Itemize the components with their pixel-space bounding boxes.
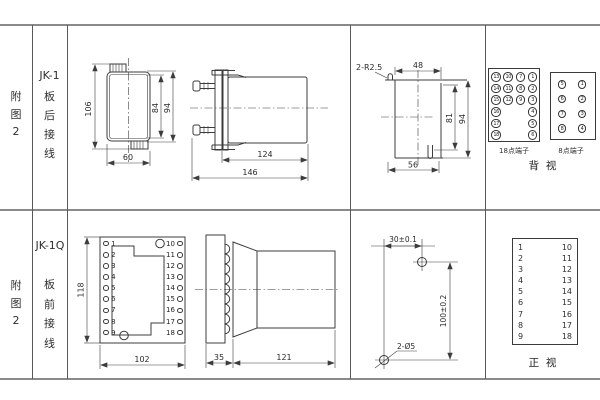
pin-number: 4 [103,271,116,282]
socket-left-pins: 123456789 [103,238,116,338]
figure-label-row1: 附 图 2 [0,88,32,141]
terminal-cell: 4 [527,106,539,118]
terminal-row: 51 [552,77,595,92]
wiring-label-row2: 板 前 接 线 [32,275,67,353]
jk1q-side-view-drawing: 35 121 [195,222,340,374]
wiring-label-row1: 板 后 接 线 [32,87,67,163]
pin-number: 14 [562,286,572,297]
terminal-block-8: 51627384 [550,72,596,140]
terminal-point: 4 [528,107,538,117]
terminal-point: 6 [528,130,538,140]
pin-number: 13 [159,271,183,282]
terminal-point: 5 [528,119,538,129]
terminal-point: 18 [491,130,501,140]
terminal-8-label: 8点端子 [545,146,597,156]
terminal-cell: 3 [572,107,592,122]
terminal-cell: 10 [502,71,514,83]
svg-text:2-R2.5: 2-R2.5 [356,63,382,72]
terminal-point: 1 [578,80,587,89]
terminal-cell: 8 [552,121,572,136]
relay-case-top-view [107,58,150,162]
pin-number: 7 [103,305,116,316]
terminal-point: 12 [503,95,513,105]
terminal-row: 84 [552,121,595,136]
svg-text:146: 146 [242,168,257,177]
terminal-cell: 7 [552,107,572,122]
svg-text:102: 102 [134,355,149,364]
cutout-outline [381,70,467,167]
terminal-point: 16 [491,107,501,117]
terminal-block-18: 131071141182151293164175186 [488,68,540,142]
dimensions: 30±0.1 100±0.2 2-Ø5 [371,235,450,368]
pin-number: 8 [518,320,523,331]
pin-number: 15 [159,294,183,305]
jk1-side-view-drawing: 124 146 [190,52,330,187]
figure-label-row2: 附 图 2 [0,277,32,330]
terminal-cell: 18 [490,129,502,141]
pin-number: 12 [562,264,572,275]
pin-number: 2 [103,249,116,260]
terminal-gap [514,118,526,130]
pin-number: 18 [159,327,183,338]
terminal-point: 4 [578,124,587,133]
pin-number: 7 [518,309,523,320]
svg-text:60: 60 [123,153,133,162]
terminal-cell: 5 [552,77,572,92]
terminal-number-table: 123456789 101112131415161718 [512,238,578,345]
terminal-cell: 12 [502,94,514,106]
svg-text:118: 118 [77,282,86,297]
terminal-point: 11 [503,84,513,94]
model-label-jk1q: JK-1Q [30,239,70,252]
terminal-gap [502,129,514,141]
drawing-sheet: 附 图 2 JK-1 板 后 接 线 106 84 [0,0,600,400]
pin-number: 1 [518,242,523,253]
front-view-label: 正 视 [485,355,600,370]
terminal-cell: 9 [514,94,526,106]
terminal-row: 151293 [490,94,539,106]
terminal-cell: 2 [527,83,539,95]
terminal-gap [514,106,526,118]
terminal-cell: 6 [552,92,572,107]
pin-number: 1 [103,238,116,249]
terminal-cell: 8 [514,83,526,95]
pin-number: 17 [159,316,183,327]
table-right-column: 101112131415161718 [562,242,572,341]
terminal-point: 17 [491,119,501,129]
jk1-front-view-drawing: 106 84 94 60 [85,52,190,182]
terminal-point: 3 [528,95,538,105]
model-label-jk1: JK-1 [32,69,67,82]
svg-text:56: 56 [408,161,418,170]
terminal-row: 73 [552,107,595,122]
svg-text:81: 81 [445,113,454,123]
terminal-cell: 4 [572,121,592,136]
svg-text:84: 84 [151,103,160,113]
terminal-cell: 1 [572,77,592,92]
dimensions: 106 84 94 60 [84,64,176,166]
terminal-row: 186 [490,129,539,141]
svg-text:106: 106 [84,101,93,116]
terminal-cell: 17 [490,118,502,130]
front-view-panel: 123456789 101112131415161718 正 视 [485,209,600,378]
rear-view-label: 背 视 [485,158,600,173]
terminal-point: 7 [516,72,526,82]
terminal-row: 175 [490,118,539,130]
grid-line-v3 [350,25,351,379]
pin-number: 18 [562,331,572,342]
pin-number: 3 [518,264,523,275]
pin-number: 17 [562,320,572,331]
socket-side-outline [195,235,338,343]
terminal-18-label: 18点端子 [485,146,543,156]
jk1q-drill-pattern-drawing: 30±0.1 100±0.2 2-Ø5 [355,225,485,375]
svg-text:48: 48 [413,61,423,70]
terminal-cell: 3 [527,94,539,106]
terminal-cell: 5 [527,118,539,130]
terminal-point: 1 [528,72,538,82]
svg-text:124: 124 [257,150,272,159]
pin-number: 9 [103,327,116,338]
pin-number: 14 [159,283,183,294]
pin-number: 13 [562,275,572,286]
jk1-cutout-drawing: 48 2-R2.5 81 94 56 [355,55,480,195]
terminal-row: 62 [552,92,595,107]
terminal-cell: 15 [490,94,502,106]
terminal-point: 10 [503,72,513,82]
relay-side-view [190,70,328,150]
terminal-gap [502,118,514,130]
pin-number: 15 [562,297,572,308]
pin-number: 6 [518,297,523,308]
terminal-cell: 6 [527,129,539,141]
svg-text:94: 94 [163,103,172,113]
pin-number: 5 [103,283,116,294]
terminal-point: 7 [558,110,567,119]
svg-text:30±0.1: 30±0.1 [389,235,417,244]
pin-number: 16 [159,305,183,316]
svg-text:100±0.2: 100±0.2 [439,295,448,328]
terminal-row: 141182 [490,83,539,95]
pin-number: 11 [159,249,183,260]
terminal-point: 8 [558,124,567,133]
pin-number: 16 [562,309,572,320]
pin-number: 8 [103,316,116,327]
terminal-cell: 16 [490,106,502,118]
table-left-column: 123456789 [518,242,523,341]
terminal-row: 131071 [490,71,539,83]
pin-number: 2 [518,253,523,264]
terminal-cell: 2 [572,92,592,107]
terminal-point: 8 [516,84,526,94]
svg-text:35: 35 [214,353,224,362]
terminal-gap [514,129,526,141]
terminal-point: 13 [491,72,501,82]
pin-number: 4 [518,275,523,286]
terminal-point: 9 [516,95,526,105]
terminal-gap [502,106,514,118]
grid-line-v2 [67,25,68,379]
terminal-point: 5 [558,80,567,89]
terminal-point: 2 [578,95,587,104]
terminal-cell: 11 [502,83,514,95]
grid-line-bottom [0,378,600,380]
svg-text:2-Ø5: 2-Ø5 [397,342,415,351]
terminal-point: 14 [491,84,501,94]
dimensions: 124 146 [192,138,308,181]
socket-right-pins: 101112131415161718 [159,238,183,338]
pin-number: 10 [159,238,183,249]
svg-text:121: 121 [276,353,291,362]
terminal-point: 15 [491,95,501,105]
terminal-cell: 7 [514,71,526,83]
pin-number: 10 [562,242,572,253]
pin-number: 3 [103,260,116,271]
pin-number: 6 [103,294,116,305]
terminal-row: 164 [490,106,539,118]
terminal-cell: 13 [490,71,502,83]
rear-view-panel: 131071141182151293164175186 51627384 18点… [485,25,600,209]
svg-text:94: 94 [458,114,467,124]
pin-number: 5 [518,286,523,297]
terminal-cell: 14 [490,83,502,95]
terminal-point: 3 [578,110,587,119]
terminal-point: 6 [558,95,567,104]
terminal-cell: 1 [527,71,539,83]
pin-number: 11 [562,253,572,264]
pin-number: 9 [518,331,523,342]
pin-number: 12 [159,260,183,271]
terminal-point: 2 [528,84,538,94]
